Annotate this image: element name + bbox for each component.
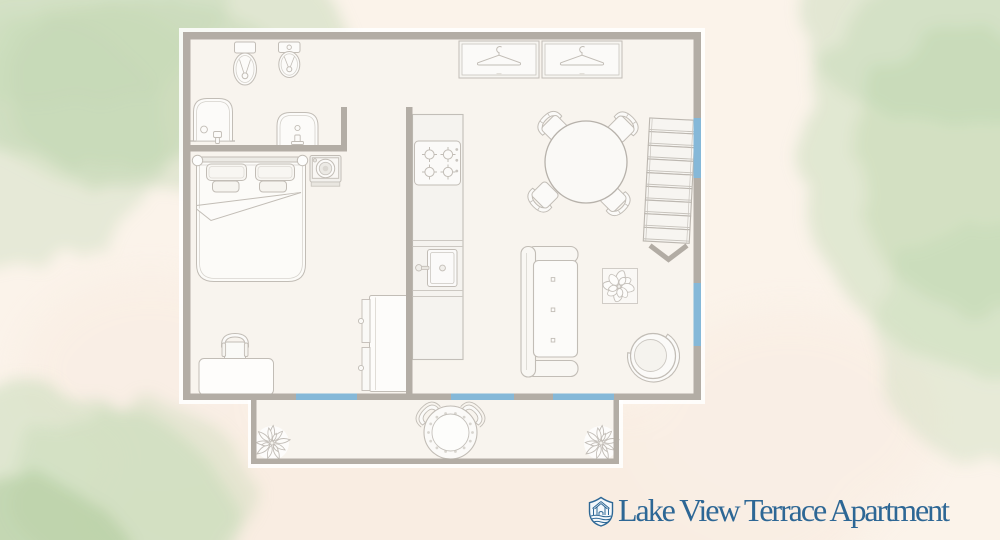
svg-text:Lake View Terrace Apartment: Lake View Terrace Apartment — [618, 492, 950, 528]
